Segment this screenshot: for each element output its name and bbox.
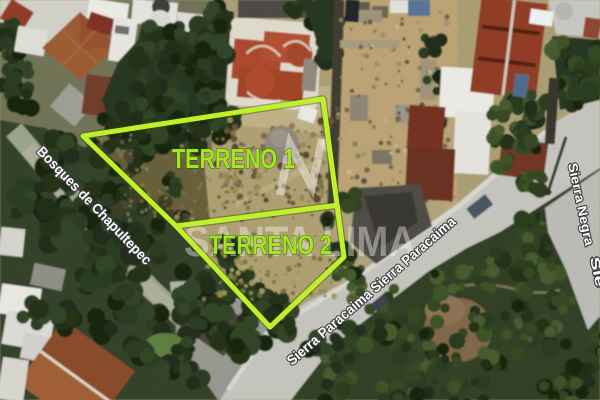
svg-text:TERRENO 1: TERRENO 1 xyxy=(172,143,295,174)
svg-text:TERRENO 2: TERRENO 2 xyxy=(209,230,332,260)
